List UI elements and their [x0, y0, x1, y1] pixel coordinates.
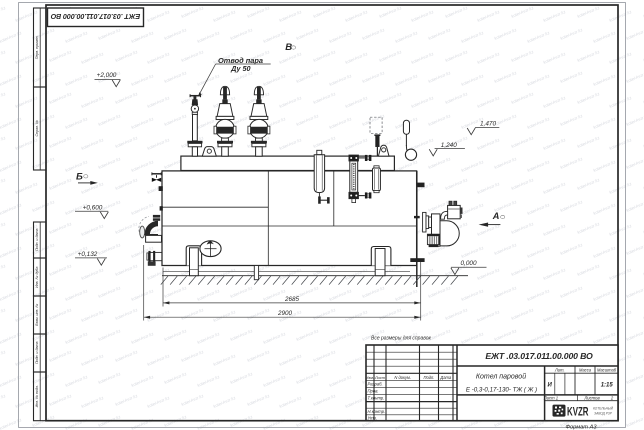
- svg-text:Лист 1: Лист 1: [543, 396, 558, 401]
- svg-text:Котел паровой: Котел паровой: [476, 373, 526, 381]
- svg-text:А: А: [492, 211, 500, 221]
- svg-text:Разраб.: Разраб.: [368, 382, 383, 387]
- svg-text:Листов: Листов: [583, 396, 600, 401]
- svg-text:2900: 2900: [277, 310, 293, 317]
- svg-text:Лит.: Лит.: [554, 367, 565, 372]
- svg-text:Утв.: Утв.: [368, 416, 378, 421]
- svg-text:Справ. №: Справ. №: [35, 120, 39, 136]
- svg-text:Лист: Лист: [374, 375, 386, 380]
- svg-text:0,000: 0,000: [461, 260, 477, 267]
- svg-text:Н.контр.: Н.контр.: [368, 409, 386, 414]
- svg-text:+2,000: +2,000: [97, 72, 117, 79]
- svg-text:ЕЖТ .03.017.011.00.000 ВО: ЕЖТ .03.017.011.00.000 ВО: [50, 12, 140, 21]
- svg-text:Пров.: Пров.: [368, 389, 379, 394]
- svg-text:+0,600: +0,600: [83, 205, 103, 212]
- svg-text:Подп. и дата: Подп. и дата: [35, 342, 39, 365]
- svg-text:1:15: 1:15: [601, 382, 614, 388]
- svg-text:1,240: 1,240: [441, 142, 457, 149]
- svg-text:ЕЖТ .03.017.011.00.000 ВО: ЕЖТ .03.017.011.00.000 ВО: [485, 351, 593, 361]
- svg-text:Изм.: Изм.: [366, 375, 374, 380]
- svg-text:Все размеры для справок: Все размеры для справок: [371, 336, 432, 342]
- svg-text:Б: Б: [76, 171, 83, 182]
- svg-text:2685: 2685: [284, 296, 300, 303]
- svg-text:Подп.: Подп.: [424, 375, 435, 380]
- svg-text:KVZR: KVZR: [567, 406, 589, 418]
- svg-text:И: И: [548, 382, 553, 388]
- svg-text:Подп. и дата: Подп. и дата: [35, 229, 39, 252]
- svg-text:Инв. № подл.: Инв. № подл.: [35, 385, 39, 407]
- svg-text:Ду 50: Ду 50: [230, 64, 250, 73]
- svg-text:N докум.: N докум.: [394, 375, 411, 380]
- svg-text:Инв. № дубл.: Инв. № дубл.: [35, 266, 39, 288]
- svg-text:Т.контр.: Т.контр.: [368, 396, 385, 401]
- svg-text:Е -0,3-0,17-130- ТЖ ( Ж ): Е -0,3-0,17-130- ТЖ ( Ж ): [466, 387, 537, 394]
- svg-text:КОТЕЛЬНЫЙ: КОТЕЛЬНЫЙ: [593, 407, 614, 411]
- svg-text:Масса: Масса: [579, 367, 592, 372]
- svg-text:1,470: 1,470: [480, 121, 496, 128]
- svg-text:ЗАВОД РЗР: ЗАВОД РЗР: [594, 412, 613, 416]
- svg-text:Взам. инв. №: Взам. инв. №: [35, 304, 39, 326]
- svg-text:Формат А3: Формат А3: [565, 425, 597, 430]
- svg-text:Масштаб: Масштаб: [597, 367, 617, 372]
- svg-text:Дата: Дата: [439, 375, 452, 380]
- svg-text:Перв. примен.: Перв. примен.: [35, 35, 39, 59]
- svg-text:+0,132: +0,132: [78, 251, 98, 258]
